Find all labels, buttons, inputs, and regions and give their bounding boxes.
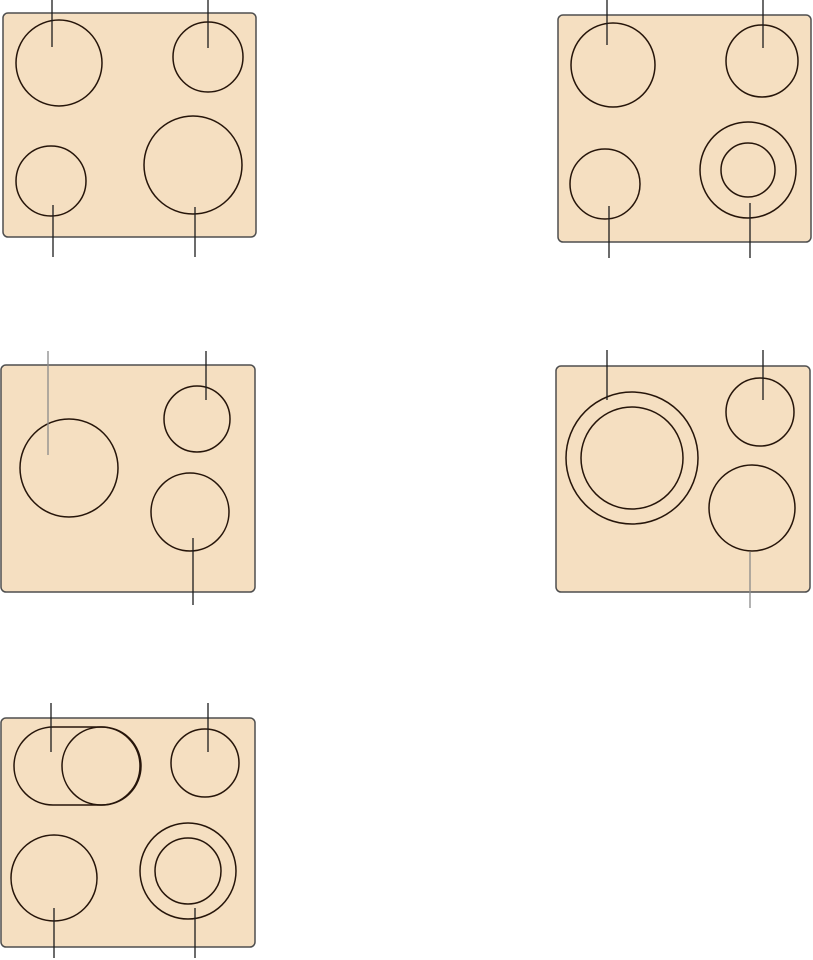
cooktop-surface	[1, 365, 255, 592]
cooktop-panel-4	[556, 350, 810, 608]
cooktop-diagram-canvas	[0, 0, 813, 960]
cooktop-panel-5	[1, 703, 255, 958]
cooktop-panel-1	[3, 0, 256, 257]
cooktop-diagram	[0, 0, 813, 960]
cooktop-surface	[3, 13, 256, 237]
cooktop-panel-3	[1, 351, 255, 605]
cooktop-surface	[556, 366, 810, 592]
cooktop-panel-2	[558, 0, 811, 258]
